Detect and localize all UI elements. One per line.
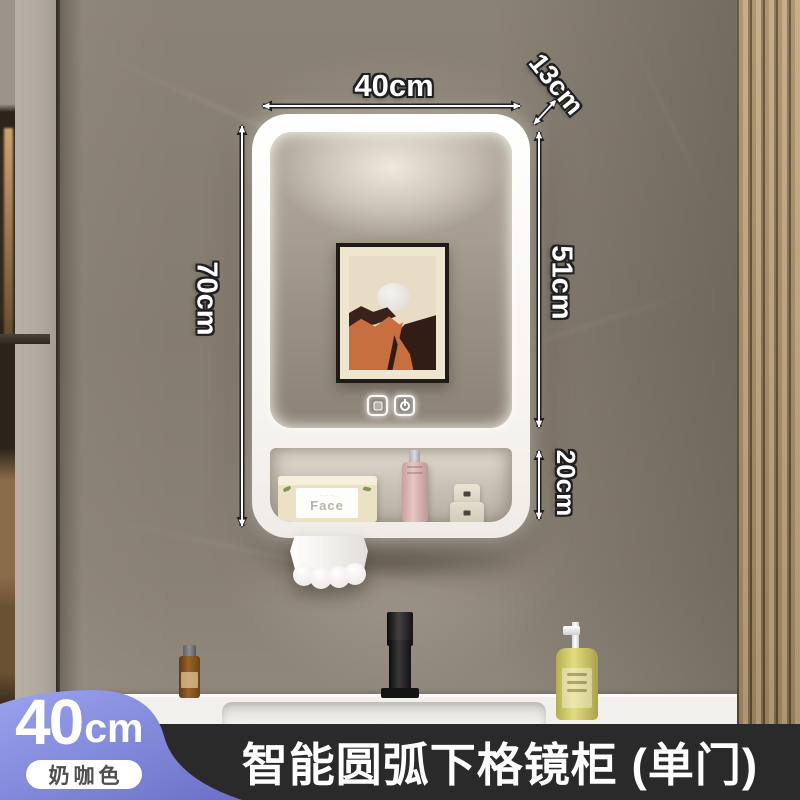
led-mirror bbox=[270, 132, 512, 428]
faucet-base bbox=[381, 688, 419, 698]
soap-pump-nozzle bbox=[563, 626, 580, 635]
tissue-label-brand: Face bbox=[310, 498, 344, 513]
niche-warm-light bbox=[4, 128, 13, 338]
soap-label-line bbox=[567, 681, 587, 684]
amber-bottle-label bbox=[181, 672, 198, 688]
cup-scallop bbox=[344, 563, 366, 585]
screen-icon bbox=[373, 401, 382, 410]
shelf-height-dimension-label: 20cm bbox=[553, 438, 579, 528]
badge-size-number: 40 bbox=[15, 694, 82, 750]
jar-logo bbox=[464, 492, 471, 497]
touch-button-power bbox=[394, 395, 415, 416]
niche-shelf-edge bbox=[0, 334, 50, 344]
tissue-box: ······ Face bbox=[278, 476, 377, 522]
cosmetic-jar-large bbox=[450, 502, 484, 522]
art-canvas bbox=[349, 256, 436, 370]
scalloped-cup bbox=[290, 536, 368, 580]
product-title: 智能圆弧下格镜柜 (单门) bbox=[200, 724, 800, 800]
soap-label-line bbox=[567, 673, 587, 676]
jar-logo bbox=[464, 511, 471, 516]
lotion-label-line bbox=[407, 466, 423, 468]
art-frame-reflection bbox=[336, 243, 449, 383]
leaf-decoration bbox=[363, 486, 372, 492]
wall-seam-shadow bbox=[60, 0, 82, 800]
touch-button-screen bbox=[367, 395, 388, 416]
mirror-height-dimension-label: 51cm bbox=[547, 238, 576, 328]
wall-pillar bbox=[15, 0, 56, 800]
leaf-decoration bbox=[283, 486, 292, 492]
wood-slat-panel bbox=[737, 0, 800, 800]
open-shelf: ······ Face bbox=[270, 448, 512, 522]
height-dimension-label: 70cm bbox=[192, 254, 221, 344]
tissue-box-label: ······ Face bbox=[296, 488, 358, 518]
mirror-cabinet: ······ Face bbox=[252, 114, 530, 538]
product-photo: ······ Face bbox=[0, 0, 800, 800]
mirror-touch-controls bbox=[367, 395, 415, 416]
lotion-label-line bbox=[407, 472, 423, 474]
color-name-pill: 奶咖色 bbox=[26, 760, 142, 789]
faucet-body bbox=[389, 640, 411, 690]
badge-size-unit: cm bbox=[84, 708, 143, 749]
width-dimension-label: 40cm bbox=[344, 70, 444, 101]
left-niche bbox=[0, 0, 15, 800]
soap-label-line bbox=[567, 689, 587, 692]
art-sun bbox=[377, 283, 410, 311]
cosmetic-jar-small bbox=[454, 484, 480, 504]
badge-size: 40 cm bbox=[15, 694, 143, 750]
pink-lotion-bottle bbox=[402, 462, 428, 522]
soap-bottle-label bbox=[562, 668, 592, 708]
